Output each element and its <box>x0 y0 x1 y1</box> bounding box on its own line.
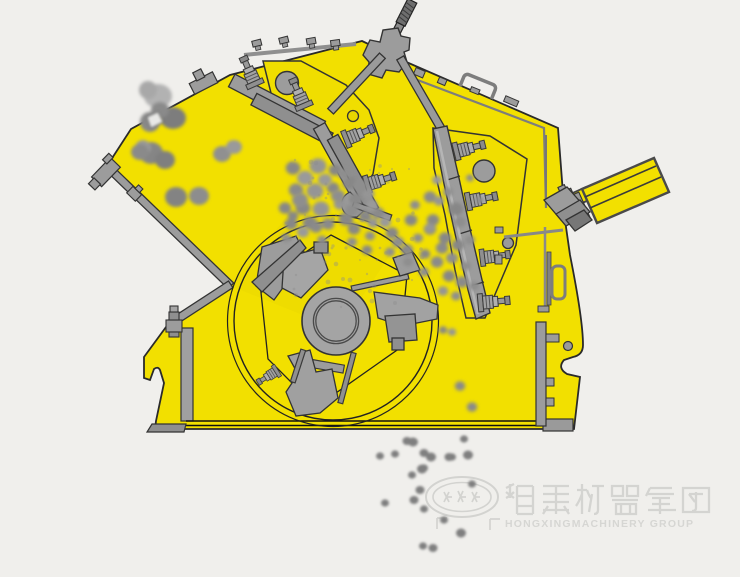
svg-text:HONGXINGMACHINERY GROUP: HONGXINGMACHINERY GROUP <box>505 518 694 530</box>
